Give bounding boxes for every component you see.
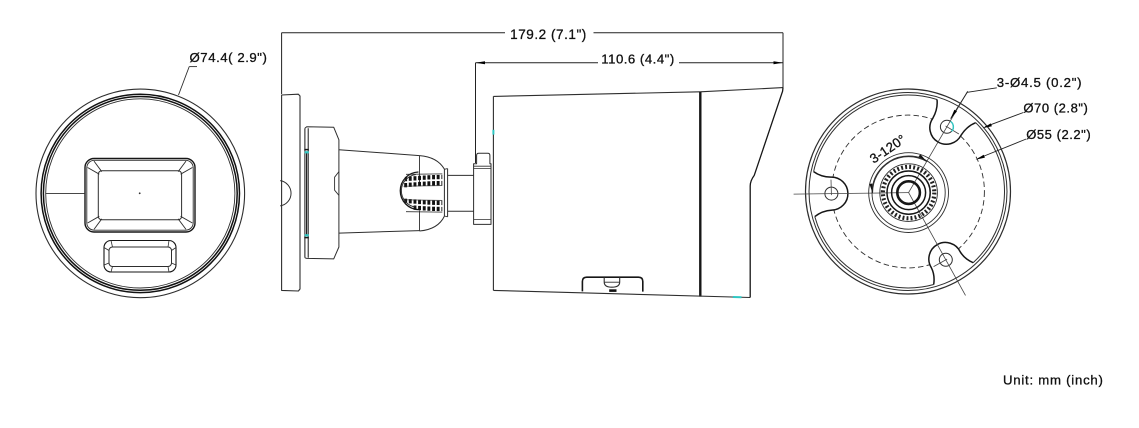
svg-text:Ø74.4( 2.9"): Ø74.4( 2.9") — [190, 50, 268, 65]
svg-text:110.6 (4.4"): 110.6 (4.4") — [601, 52, 674, 67]
svg-text:Unit: mm (inch): Unit: mm (inch) — [1003, 373, 1104, 388]
svg-text:Ø55 (2.2"): Ø55 (2.2") — [1026, 127, 1091, 142]
svg-text:Ø70 (2.8"): Ø70 (2.8") — [1023, 100, 1088, 115]
svg-text:179.2 (7.1"): 179.2 (7.1") — [510, 27, 587, 42]
svg-text:3-Ø4.5 (0.2"): 3-Ø4.5 (0.2") — [997, 75, 1083, 90]
